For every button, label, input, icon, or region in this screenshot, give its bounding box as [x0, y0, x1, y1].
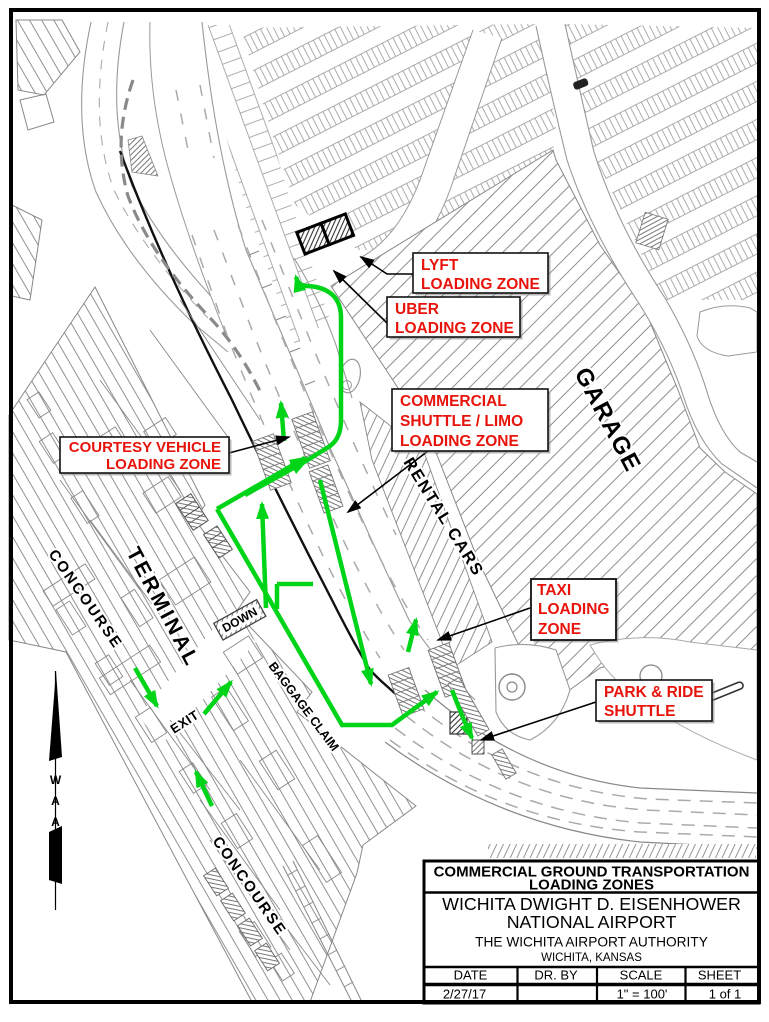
- svg-text:DATE: DATE: [454, 968, 488, 983]
- svg-text:SHEET: SHEET: [698, 968, 741, 983]
- svg-text:PARK & RIDE: PARK & RIDE: [604, 684, 704, 701]
- svg-text:LOADING ZONE: LOADING ZONE: [421, 276, 540, 293]
- svg-text:ZONE: ZONE: [538, 621, 581, 638]
- svg-text:DR. BY: DR. BY: [534, 968, 578, 983]
- svg-text:LOADING ZONE: LOADING ZONE: [400, 433, 519, 450]
- svg-text:2/27/17: 2/27/17: [443, 987, 486, 1002]
- svg-text:A: A: [51, 815, 60, 829]
- svg-text:NATIONAL AIRPORT: NATIONAL AIRPORT: [507, 912, 677, 932]
- svg-text:UBER: UBER: [395, 301, 439, 318]
- svg-text:LOADING ZONE: LOADING ZONE: [106, 456, 221, 473]
- svg-text:LOADING ZONES: LOADING ZONES: [529, 877, 654, 894]
- svg-text:A: A: [51, 794, 60, 808]
- svg-text:COMMERCIAL: COMMERCIAL: [400, 393, 507, 410]
- svg-text:LOADING ZONE: LOADING ZONE: [395, 320, 514, 337]
- svg-text:SHUTTLE: SHUTTLE: [604, 703, 675, 720]
- svg-text:COURTESY VEHICLE: COURTESY VEHICLE: [69, 439, 221, 456]
- svg-text:SHUTTLE / LIMO: SHUTTLE / LIMO: [400, 413, 523, 430]
- svg-text:TAXI: TAXI: [537, 582, 571, 599]
- svg-text:LOADING: LOADING: [538, 601, 609, 618]
- svg-text:1 of 1: 1 of 1: [709, 987, 742, 1002]
- svg-text:SCALE: SCALE: [620, 968, 663, 983]
- svg-text:W: W: [50, 773, 62, 787]
- svg-text:WICHITA DWIGHT D. EISENHOWER: WICHITA DWIGHT D. EISENHOWER: [442, 894, 741, 914]
- svg-text:WICHITA, KANSAS: WICHITA, KANSAS: [541, 952, 642, 964]
- svg-text:LYFT: LYFT: [421, 257, 459, 274]
- svg-text:THE WICHITA AIRPORT AUTHORITY: THE WICHITA AIRPORT AUTHORITY: [475, 935, 708, 950]
- svg-text:1" = 100': 1" = 100': [617, 987, 668, 1002]
